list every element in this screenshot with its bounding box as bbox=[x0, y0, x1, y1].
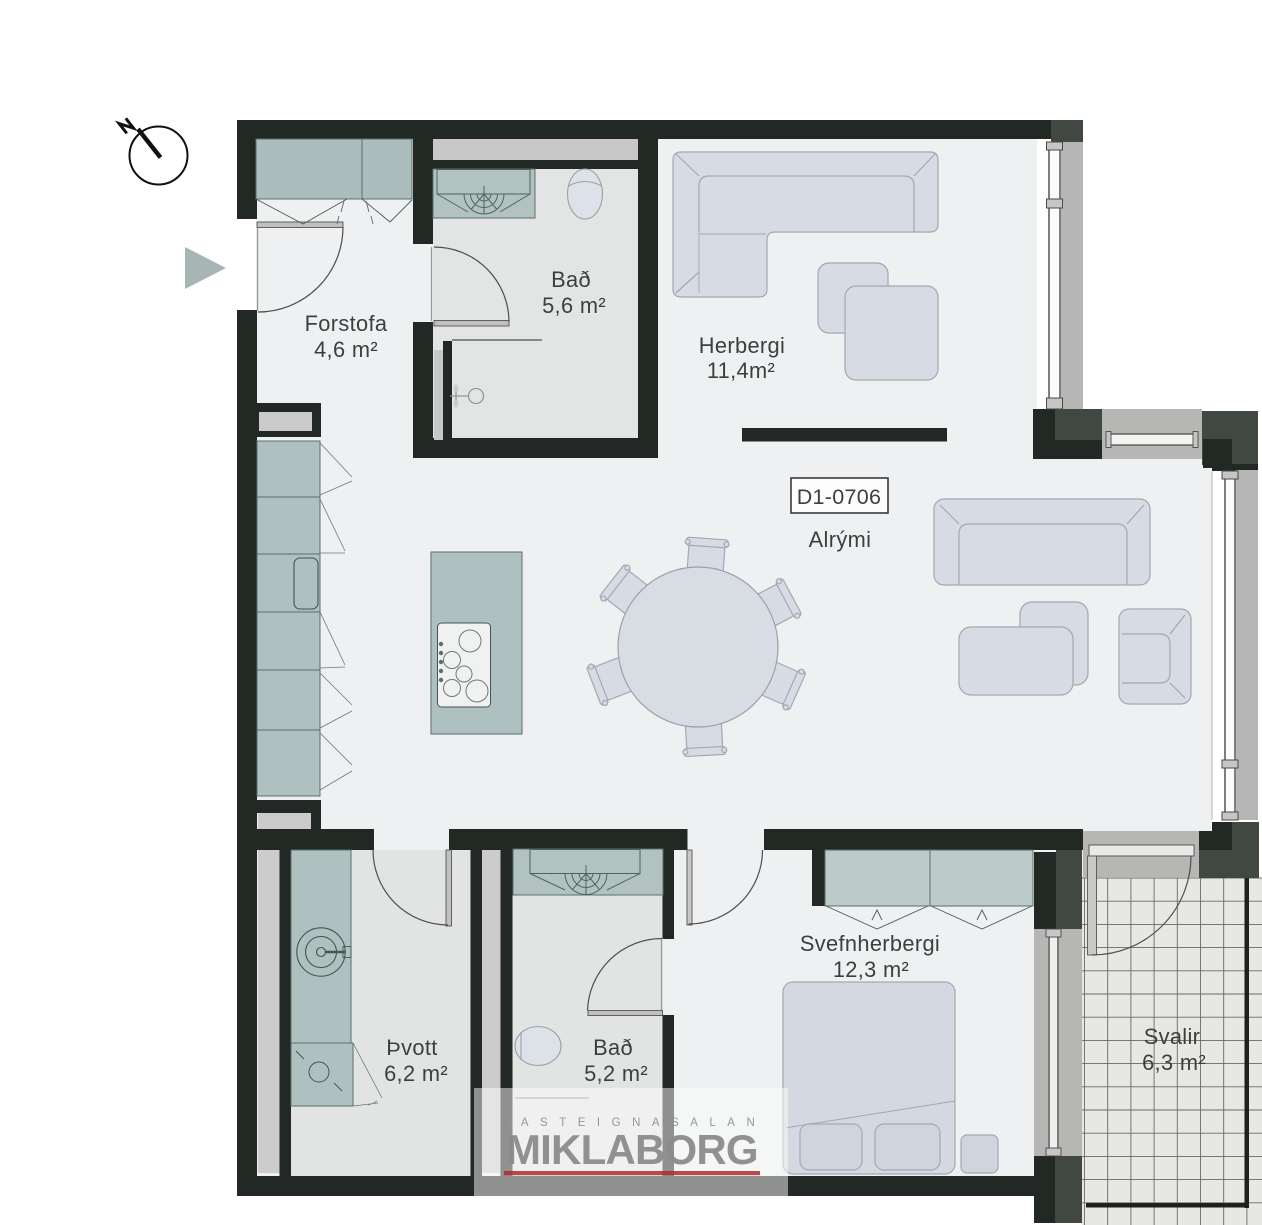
svg-text:Alrými: Alrými bbox=[809, 527, 872, 552]
svg-text:D1-0706: D1-0706 bbox=[797, 485, 882, 509]
svg-text:11,4m²: 11,4m² bbox=[707, 358, 775, 383]
svg-text:Svefnherbergi: Svefnherbergi bbox=[800, 931, 940, 956]
svg-text:MIKLABORG: MIKLABORG bbox=[506, 1126, 758, 1173]
svg-text:Herbergi: Herbergi bbox=[699, 333, 785, 358]
svg-text:Bað: Bað bbox=[551, 267, 591, 292]
svg-text:12,3 m²: 12,3 m² bbox=[833, 957, 909, 982]
svg-text:5,6 m²: 5,6 m² bbox=[542, 293, 606, 318]
svg-text:Bað: Bað bbox=[593, 1035, 633, 1060]
svg-text:Forstofa: Forstofa bbox=[305, 311, 388, 336]
svg-text:4,6 m²: 4,6 m² bbox=[314, 337, 378, 362]
svg-text:Þvott: Þvott bbox=[386, 1035, 437, 1060]
svg-text:5,2 m²: 5,2 m² bbox=[584, 1061, 648, 1086]
svg-text:6,2 m²: 6,2 m² bbox=[384, 1061, 448, 1086]
svg-text:Svalir: Svalir bbox=[1144, 1024, 1201, 1049]
svg-text:6,3 m²: 6,3 m² bbox=[1142, 1050, 1206, 1075]
